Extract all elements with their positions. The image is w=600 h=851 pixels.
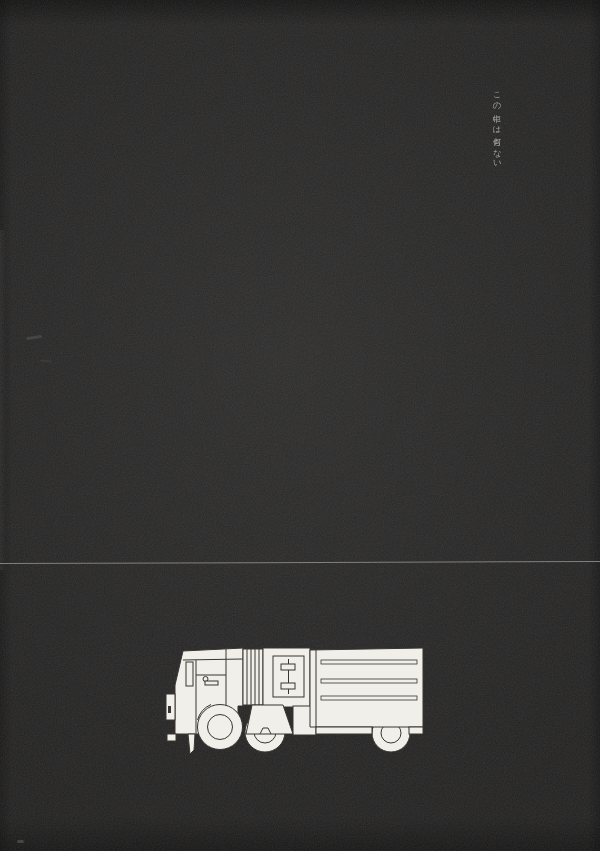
front-step [167,734,176,741]
box-stripe [321,660,417,664]
box-stripe [321,679,417,683]
scanned-page: この中には何もない [0,0,600,851]
truck-front-wheel [198,705,243,750]
page-left-edge-highlight [0,230,6,570]
truck-line-illustration [160,630,440,760]
vertical-caption-text: この中には何もない [493,86,502,196]
truck-cargo-box [310,648,423,734]
truck-fender [246,705,293,734]
rear-skirt [409,727,423,734]
box-stripe [321,696,417,700]
exhaust-pipe [188,734,195,754]
side-skirt [316,727,372,734]
dust-speck [17,840,24,843]
cab-window [186,662,193,686]
